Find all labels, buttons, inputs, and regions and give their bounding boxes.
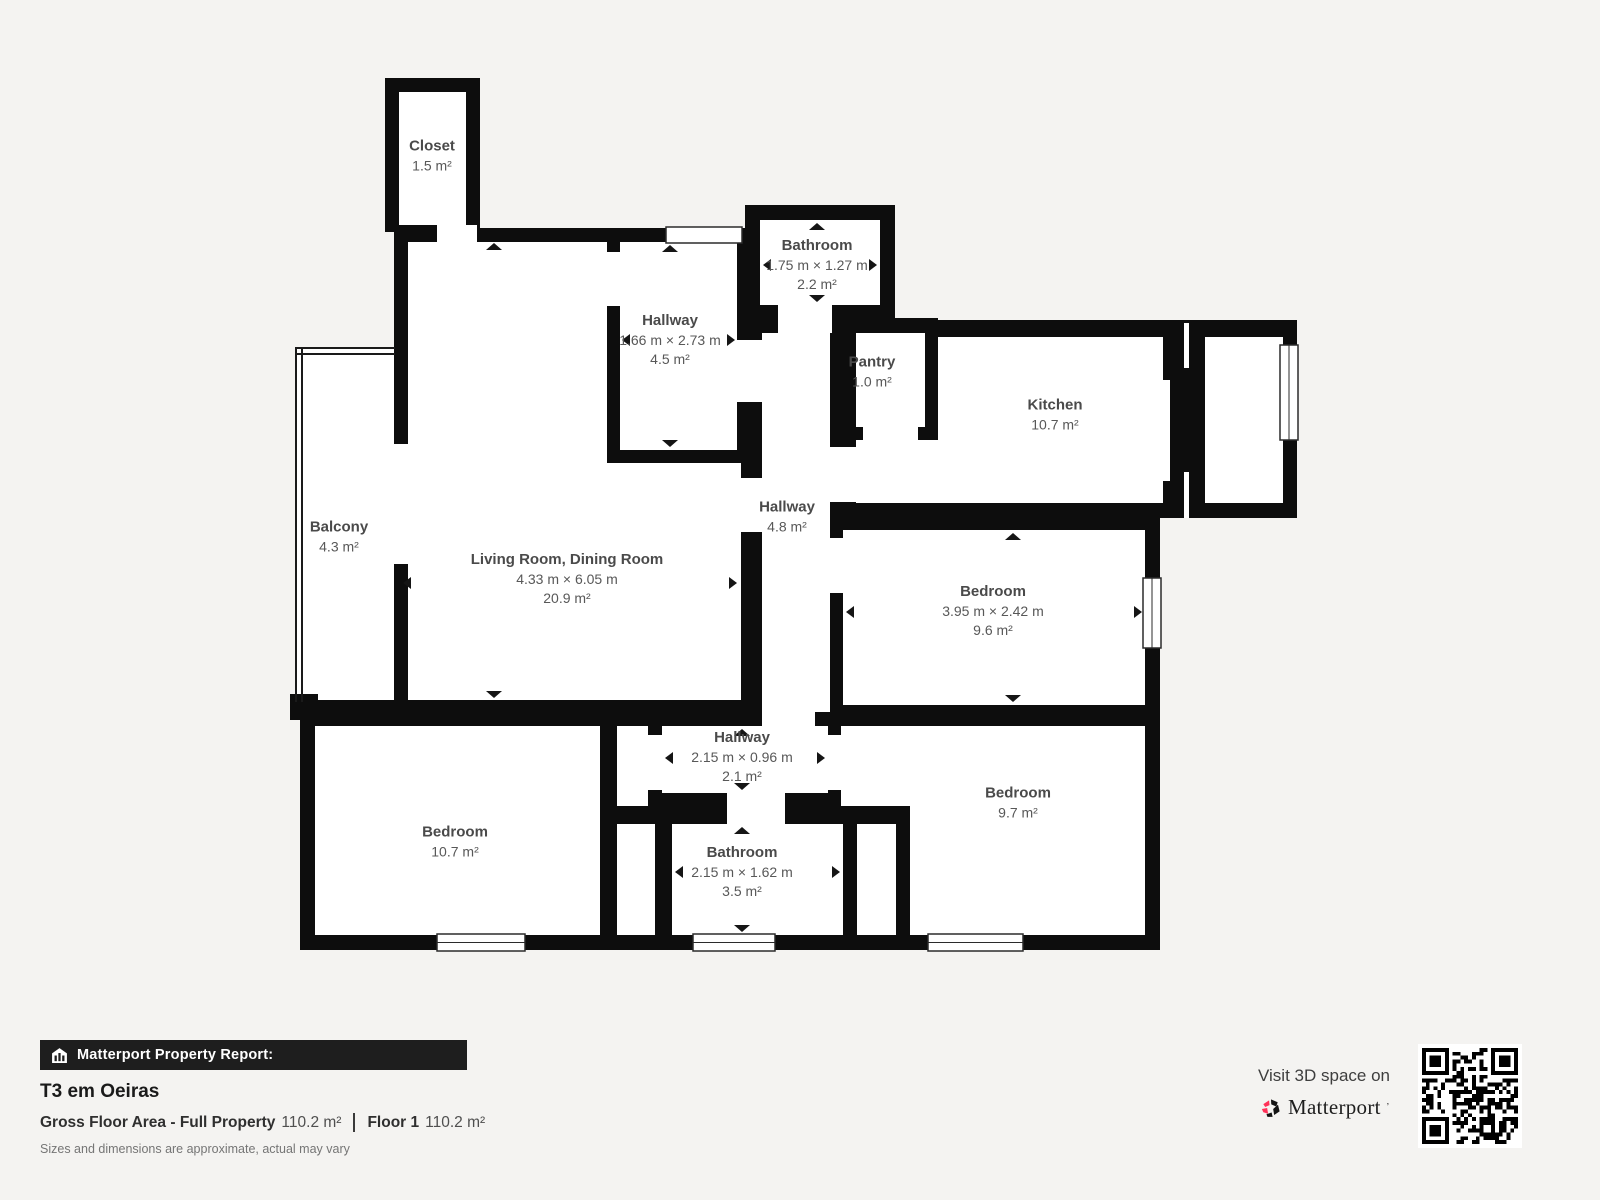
matterport-wordmark: Matterport [1288,1095,1381,1120]
visit-3d-block: Visit 3D space on Matterport’ [1246,1066,1402,1120]
floorplan-page: Closet 1.5 m² Hallway 1.66 m × 2.73 m 4.… [0,0,1600,1200]
matterport-pinwheel-icon [1259,1096,1282,1119]
report-bar: Matterport Property Report: [40,1040,467,1070]
house-icon [51,1047,68,1064]
qr-code [1418,1044,1522,1148]
gross-floor-area-value: 110.2 m² [281,1114,341,1132]
qr-pattern [1422,1048,1518,1144]
trademark-mark: ’ [1387,1102,1389,1113]
area-info-line: Gross Floor Area - Full Property 110.2 m… [40,1113,485,1132]
floor-label: Floor 1 [367,1114,419,1132]
report-bar-label: Matterport Property Report: [77,1047,273,1063]
property-title: T3 em Oeiras [40,1081,159,1103]
floorplan-svg [0,0,1600,1200]
disclaimer-text: Sizes and dimensions are approximate, ac… [40,1142,350,1156]
visit-3d-text: Visit 3D space on [1246,1066,1402,1086]
info-divider [353,1113,355,1132]
matterport-logo: Matterport’ [1246,1095,1402,1120]
gross-floor-area-label: Gross Floor Area - Full Property [40,1114,275,1132]
floor-value: 110.2 m² [425,1114,485,1132]
